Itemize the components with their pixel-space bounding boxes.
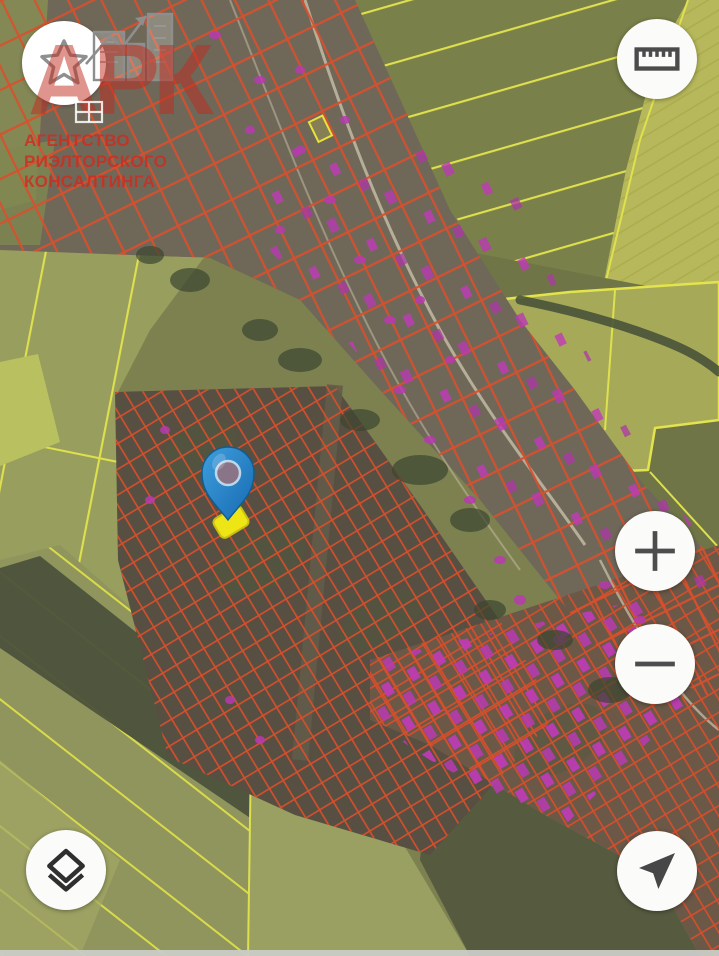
- zoom-in-button[interactable]: [615, 511, 695, 591]
- minus-icon: [627, 636, 683, 692]
- map-canvas[interactable]: [0, 0, 719, 956]
- screen-edge-strip: [0, 950, 719, 956]
- my-location-button[interactable]: [617, 831, 697, 911]
- ruler-icon: [631, 33, 683, 85]
- measure-button[interactable]: [617, 19, 697, 99]
- layers-icon: [39, 843, 93, 897]
- location-arrow-icon: [633, 847, 681, 895]
- plus-icon: [627, 523, 683, 579]
- zoom-out-button[interactable]: [615, 624, 695, 704]
- layers-button[interactable]: [26, 830, 106, 910]
- map-app: АРК АГЕНТСТВО РИЭЛТОРСКОГО КОНСАЛТИНГА: [0, 0, 719, 956]
